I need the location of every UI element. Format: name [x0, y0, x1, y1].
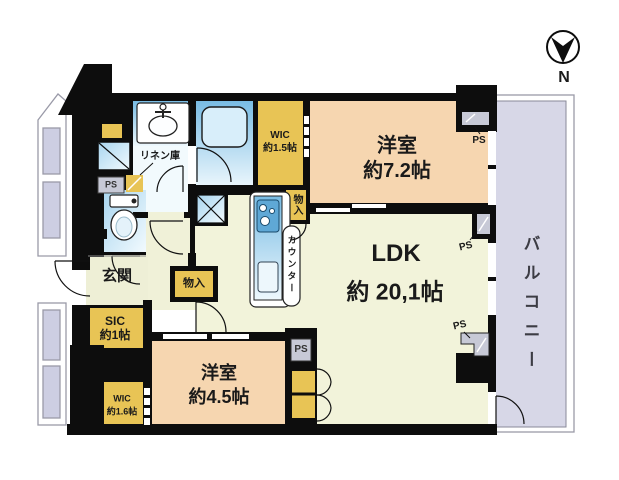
bedroom-main-name: 洋室 — [377, 136, 417, 156]
bedroom-main-size: 約7.2帖 — [363, 161, 431, 181]
sink-icon — [258, 262, 278, 292]
ps-label-bottom: PS — [294, 345, 307, 355]
laundry-icon — [98, 142, 130, 170]
wic-second-name: WIC — [113, 395, 131, 404]
bath-door-gap — [188, 146, 196, 184]
sic-name: SIC — [105, 315, 125, 327]
ps-label-washroom: PS — [105, 181, 117, 190]
balcony-door-gap — [488, 392, 496, 424]
counter-label: カウンター — [287, 235, 296, 295]
floor-plan: 洋室 約7.2帖 LDK 約 20,1帖 洋室 約4.5帖 玄関 SIC 約1帖… — [0, 0, 619, 480]
bedroom-second-size: 約4.5帖 — [188, 388, 249, 406]
entrance-label: 玄関 — [102, 269, 132, 284]
neighbor-structures — [38, 94, 66, 425]
ldk-size: 約 20,1帖 — [346, 281, 443, 304]
wic-main-size: 約1.5帖 — [263, 144, 297, 154]
hatch-box-icon — [197, 195, 225, 223]
ldk-name: LDK — [371, 242, 420, 266]
stove-icon — [257, 200, 279, 232]
bedroom-second-floor — [152, 341, 285, 427]
compass-north-label: N — [558, 70, 570, 86]
storage-kitchen-label: 物入 — [291, 194, 301, 216]
storage-hall-label: 物入 — [183, 279, 205, 290]
ps-label-topright: PS — [472, 136, 485, 146]
balcony-label: バルコニー — [522, 235, 539, 380]
sic-size: 約1帖 — [100, 329, 131, 341]
wic-second-floor — [102, 382, 143, 428]
sliding-door-bedroom-second — [163, 334, 249, 339]
compass-icon — [547, 31, 579, 63]
bedroom-second-name: 洋室 — [201, 364, 237, 382]
wic-second-size: 約1.6帖 — [107, 408, 138, 417]
small-shaft-box — [102, 124, 122, 138]
wic-main-name: WIC — [270, 131, 289, 141]
ps-slot-topright — [462, 112, 489, 125]
linen-closet-label: リネン庫 — [140, 152, 180, 162]
vanity-icon — [137, 103, 189, 143]
bathtub-icon — [202, 107, 247, 147]
